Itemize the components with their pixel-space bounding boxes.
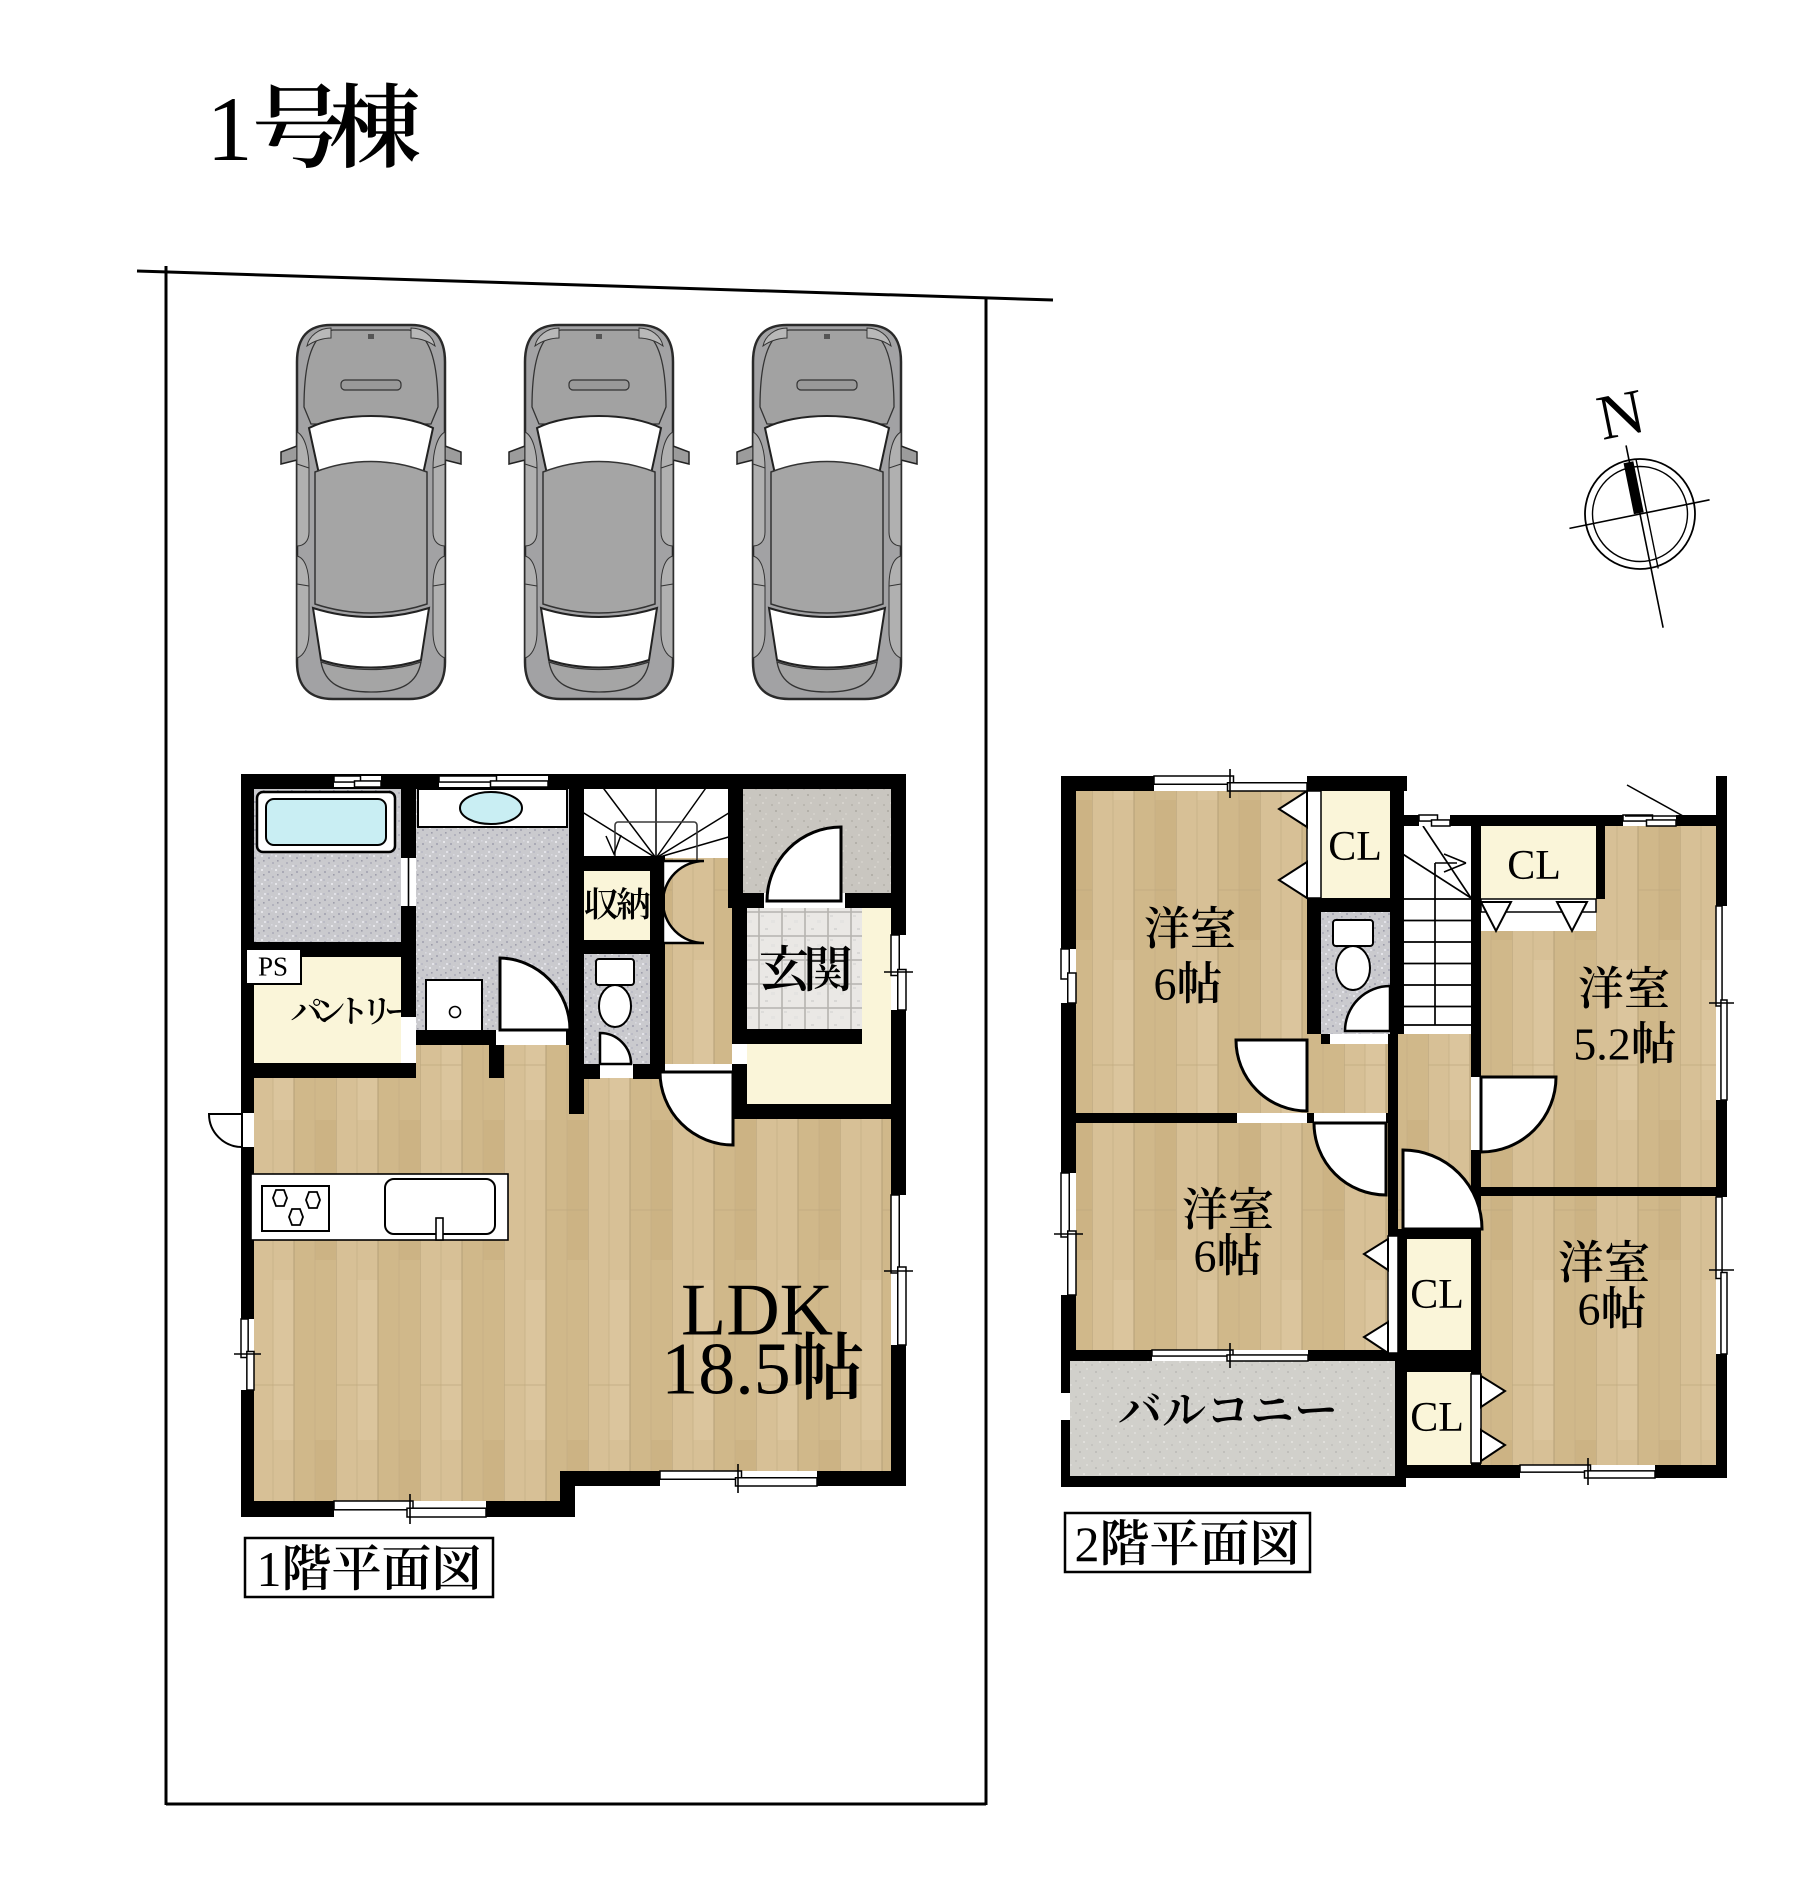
svg-text:CL: CL	[1410, 1272, 1464, 1318]
svg-text:N: N	[1591, 375, 1650, 454]
svg-text:18.5: 18.5	[661, 1329, 791, 1411]
svg-text:1: 1	[207, 78, 253, 180]
svg-text:1: 1	[257, 1541, 282, 1597]
svg-text:6: 6	[1154, 959, 1177, 1010]
svg-text:CL: CL	[1507, 843, 1561, 889]
svg-text:5.2: 5.2	[1573, 1019, 1631, 1070]
svg-text:6: 6	[1194, 1231, 1217, 1282]
svg-text:6: 6	[1578, 1284, 1601, 1335]
svg-text:CL: CL	[1410, 1395, 1464, 1441]
svg-text:2: 2	[1075, 1516, 1100, 1572]
svg-text:CL: CL	[1328, 824, 1382, 870]
svg-text:PS: PS	[258, 952, 288, 982]
